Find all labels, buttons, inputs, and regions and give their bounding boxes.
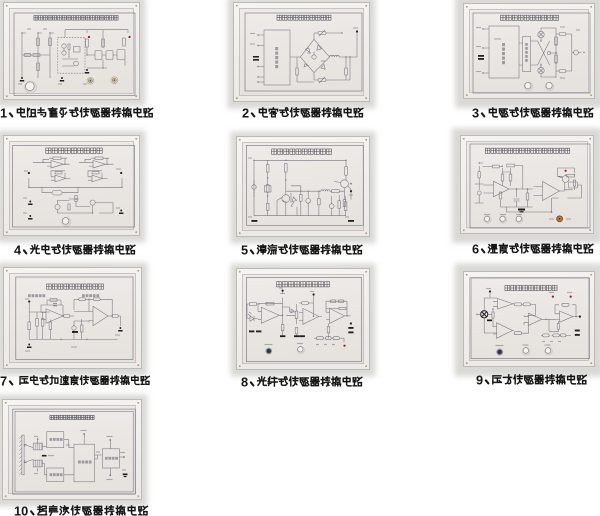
svg-text:8: 8 bbox=[241, 376, 248, 389]
svg-text:5: 5 bbox=[241, 244, 248, 257]
svg-text:4: 4 bbox=[14, 244, 22, 257]
svg-text:7: 7 bbox=[0, 375, 7, 388]
svg-text:6: 6 bbox=[472, 243, 479, 256]
svg-text:2: 2 bbox=[242, 107, 249, 120]
svg-text:3: 3 bbox=[472, 107, 479, 120]
svg-text:10: 10 bbox=[14, 505, 28, 516]
svg-text:9: 9 bbox=[476, 374, 483, 387]
svg-text:1: 1 bbox=[0, 107, 7, 120]
